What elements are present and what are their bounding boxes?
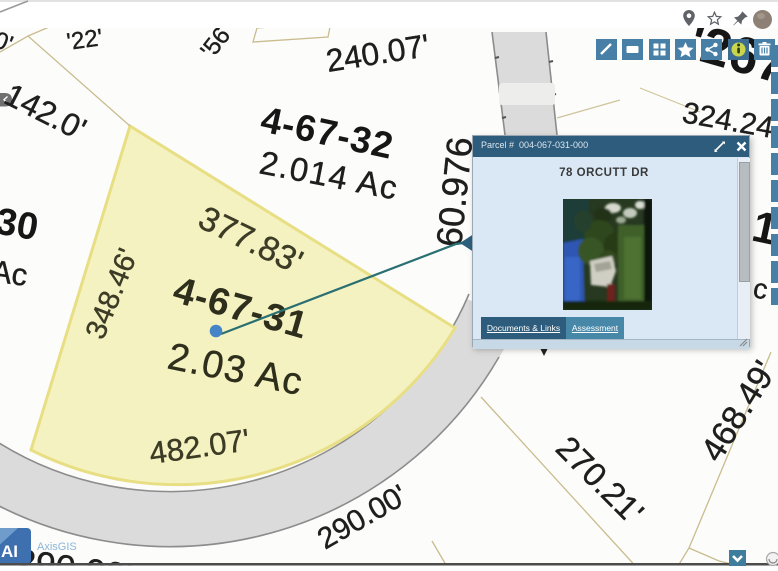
svg-text:30: 30 — [0, 201, 41, 250]
svg-text:AxisGIS: AxisGIS — [37, 541, 77, 553]
svg-text:AI: AI — [1, 542, 18, 561]
svg-text:'22': '22' — [65, 24, 104, 56]
svg-text:Ac: Ac — [0, 253, 30, 293]
